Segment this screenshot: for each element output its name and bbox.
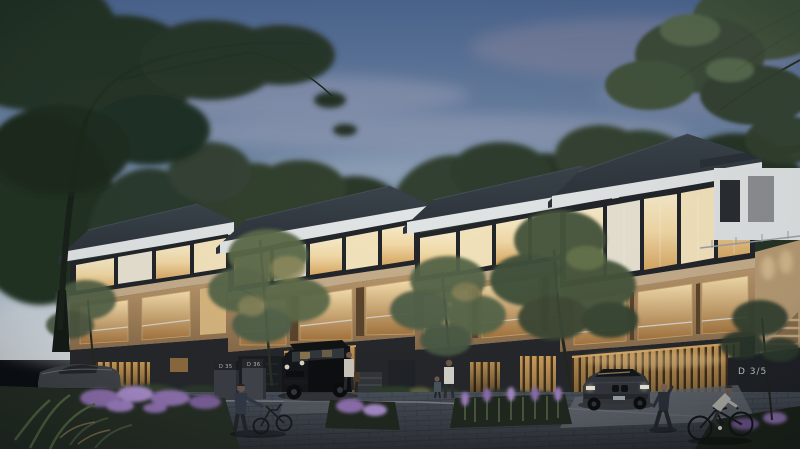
townhouse-dusk-render: D 3/5 — [0, 0, 800, 449]
vignette-overlay — [0, 0, 800, 449]
render-canvas: D 3/5 — [0, 0, 800, 449]
